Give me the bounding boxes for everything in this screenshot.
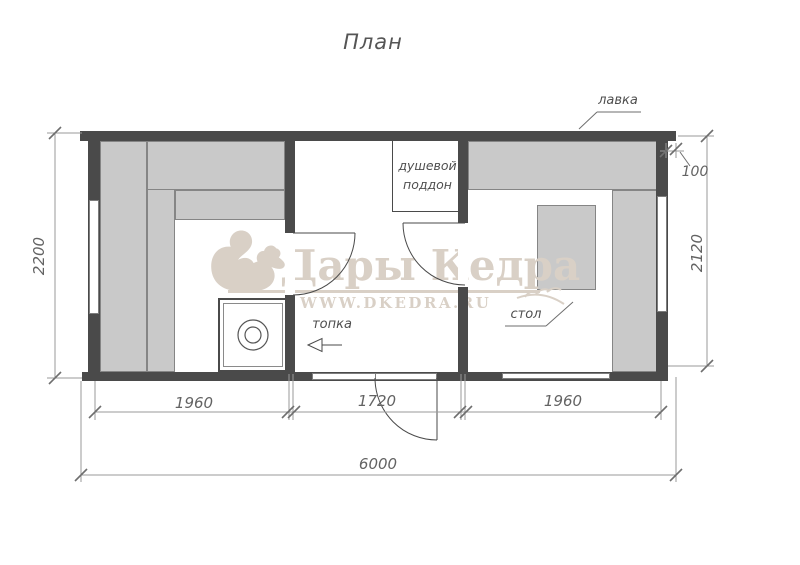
dim-bottom-middle: 1720 <box>337 392 417 410</box>
floor-plan: План душевой поддон Дары Кедра WWW.DKEDR… <box>0 0 800 565</box>
label-leaders <box>505 112 690 326</box>
stove-rings <box>238 320 268 350</box>
table-label: стол <box>496 307 556 322</box>
page-title: План <box>318 30 428 54</box>
dim-overhang: 100 <box>678 164 712 180</box>
dim-total-width: 6000 <box>338 455 418 473</box>
dim-bottom-right: 1960 <box>523 392 603 410</box>
dimension-ticks <box>49 127 713 481</box>
dim-height-right: 2120 <box>688 223 708 283</box>
dim-height-left: 2200 <box>30 226 50 286</box>
firebox-label: топка <box>302 317 362 332</box>
dimension-lines <box>47 133 714 482</box>
dim-bottom-left: 1960 <box>154 394 234 412</box>
firebox-arrow-icon <box>308 339 342 352</box>
plan-linework <box>0 0 800 565</box>
bench-label: лавка <box>588 93 648 108</box>
